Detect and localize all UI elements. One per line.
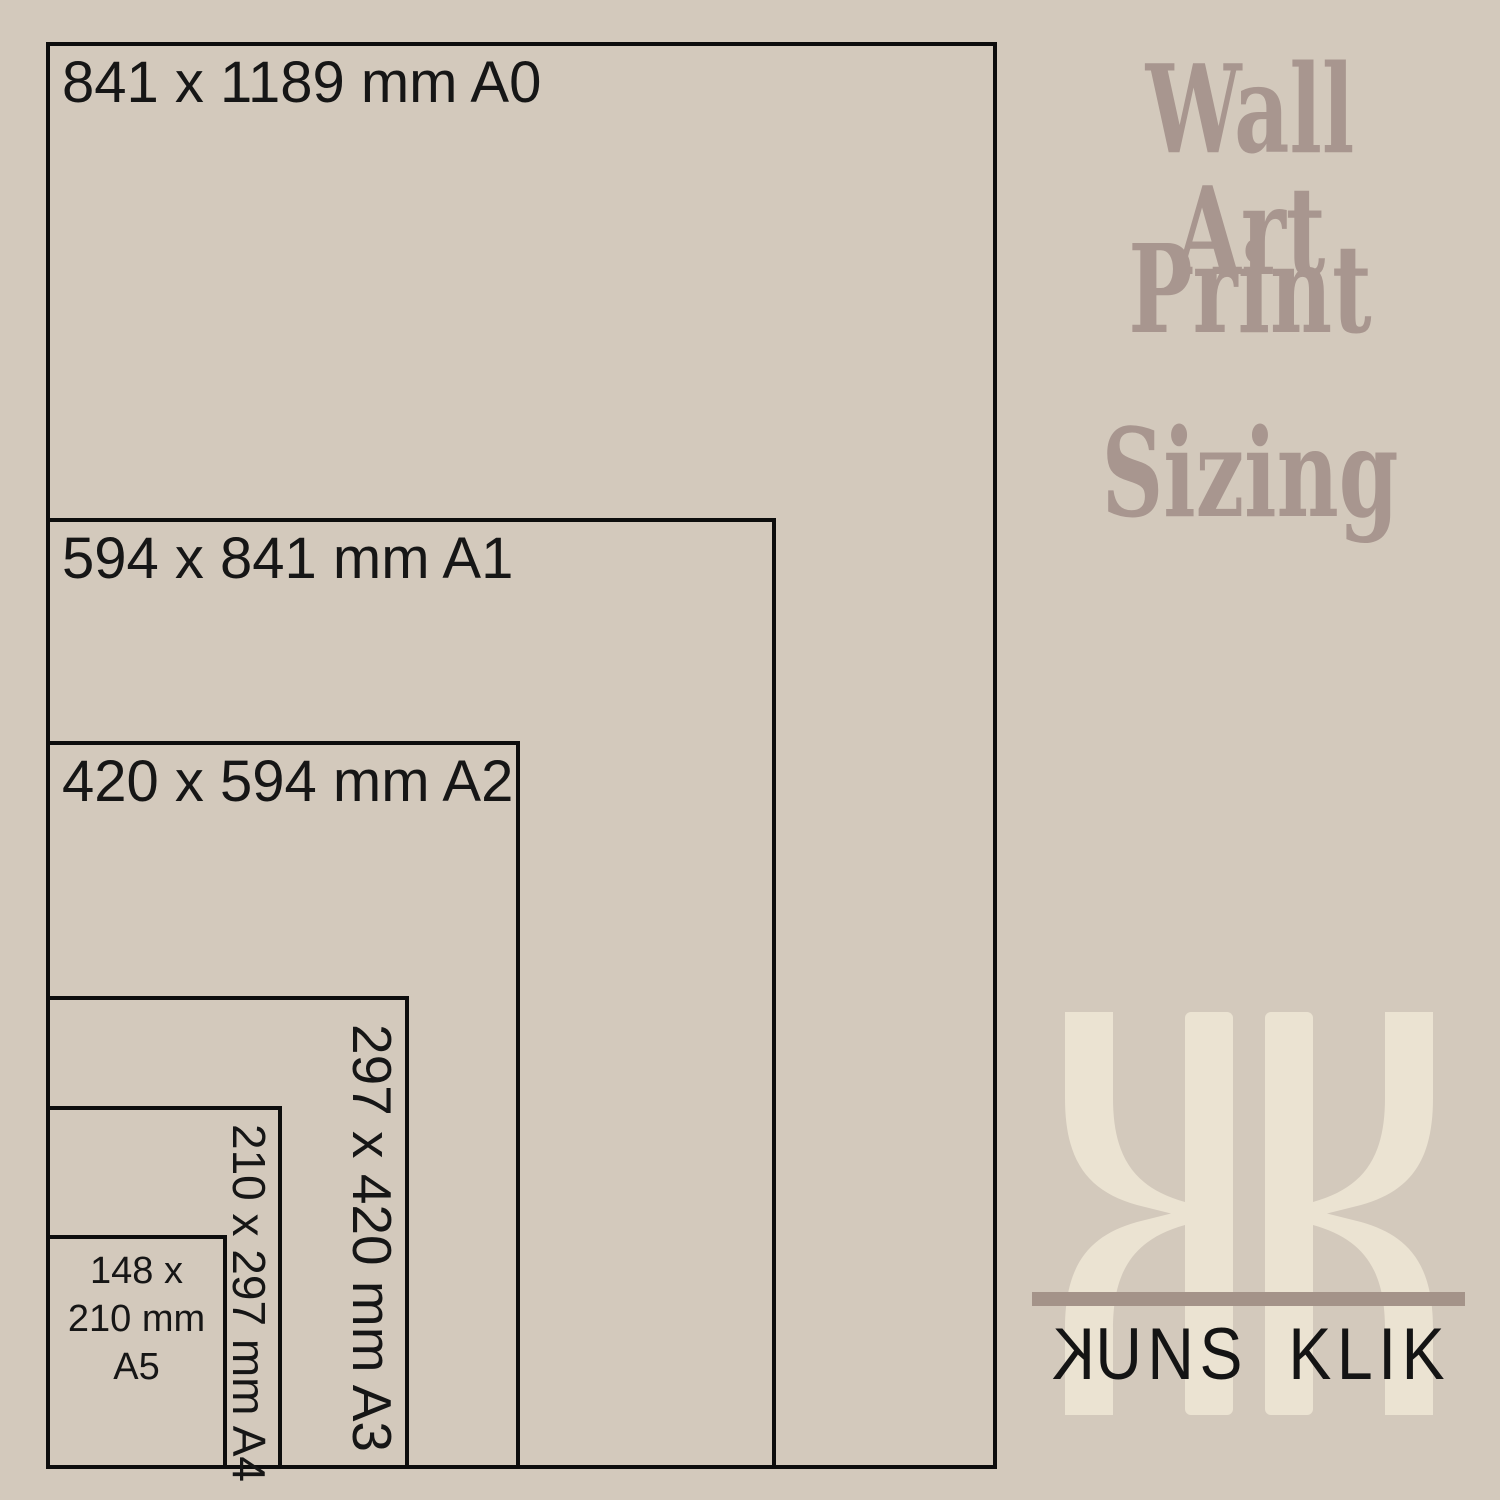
page-title-line-3: Sizing — [1075, 412, 1425, 534]
size-label-A2: 420 x 594 mm A2 — [62, 749, 513, 816]
wordmark-kuns: KUNS — [1047, 1317, 1248, 1391]
mirrored-k-letter: K — [1047, 1317, 1095, 1391]
size-label-A5: 148 x210 mmA5 — [50, 1247, 223, 1391]
page-title-line-2: Print — [1075, 228, 1425, 350]
brand-wordmark: KUNS KLIK — [1049, 1317, 1447, 1391]
size-label-A4: 210 x 297 mm A4 — [225, 1124, 273, 1482]
wordmark-klik: KLIK — [1288, 1317, 1450, 1391]
size-rect-A5: 148 x210 mmA5 — [46, 1235, 227, 1469]
size-label-A0: 841 x 1189 mm A0 — [62, 50, 541, 117]
size-label-A1: 594 x 841 mm A1 — [62, 526, 513, 593]
wall-art-print-sizing-infographic: 841 x 1189 mm A0594 x 841 mm A1420 x 594… — [0, 0, 1500, 1500]
logo-divider-bar — [1032, 1292, 1465, 1306]
size-label-A3: 297 x 420 mm A3 — [342, 1024, 400, 1452]
